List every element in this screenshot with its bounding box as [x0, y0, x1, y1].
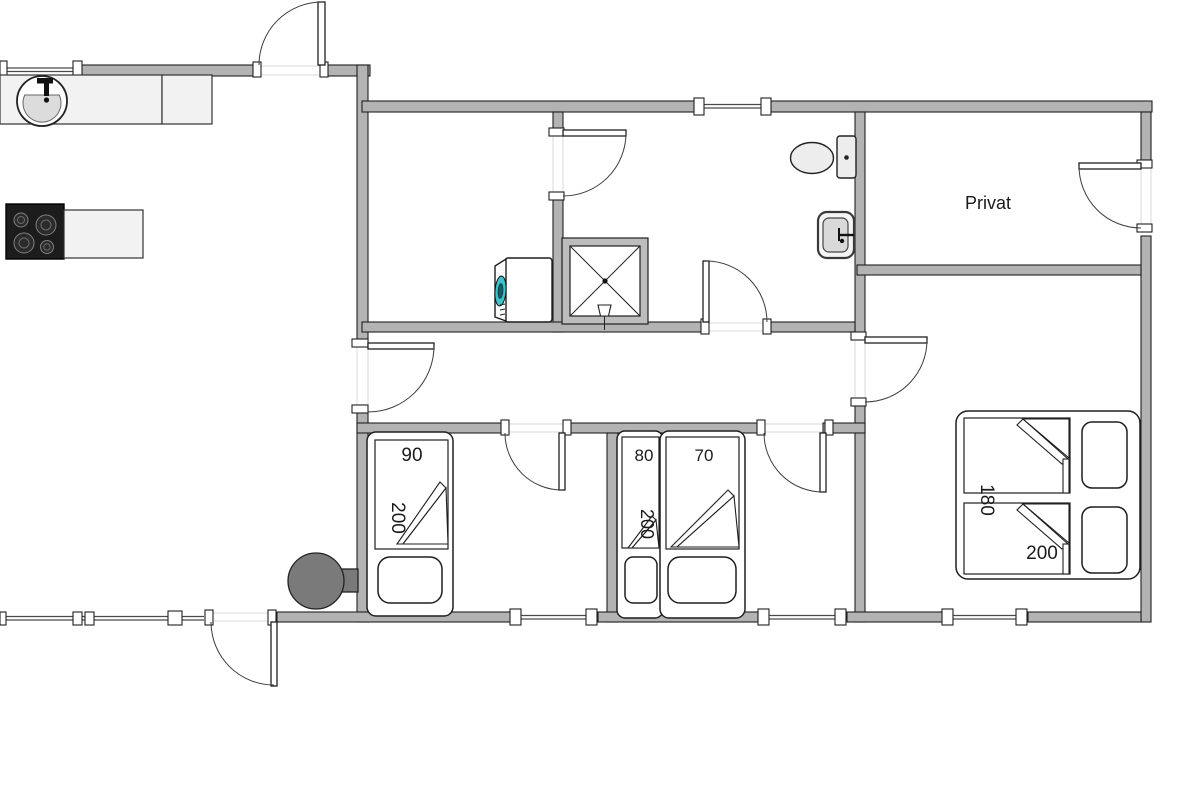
- floor-plan-canvas: 90 200 80 200 70 180 200 Privat: [0, 0, 1200, 800]
- door-swing-arc: [211, 622, 274, 685]
- window-cap: [694, 98, 704, 115]
- mattress-seam: [1063, 544, 1069, 574]
- wall-segment: [1028, 612, 1141, 622]
- door-leaf: [703, 261, 709, 322]
- window-south-bedroom2: [758, 609, 846, 625]
- bed-length-label: 200: [637, 509, 657, 539]
- door-jamb: [851, 332, 866, 340]
- toilet: [791, 136, 857, 178]
- washer-body: [505, 258, 552, 322]
- door-jamb: [501, 420, 509, 435]
- door-leaf: [271, 622, 277, 686]
- window-south-bedroom3: [942, 609, 1027, 625]
- window-glass: [521, 612, 588, 622]
- shower: [562, 238, 648, 330]
- wall-segment: [362, 322, 706, 332]
- door-swing-arc: [563, 133, 626, 196]
- door-jamb: [757, 420, 765, 435]
- kitchen: [0, 75, 212, 259]
- burner-icon: [41, 241, 54, 254]
- door-swing-arc: [865, 340, 927, 402]
- drain-icon: [44, 97, 49, 102]
- shower-center-dot: [602, 278, 607, 283]
- bed-length-label: 200: [1026, 543, 1058, 564]
- opening-privat-door: [1141, 168, 1151, 228]
- pillow: [378, 557, 442, 603]
- window-cap: [761, 98, 771, 115]
- wall-segment: [1141, 112, 1151, 160]
- window-glass: [769, 612, 836, 622]
- wall-segment: [765, 101, 1152, 112]
- opening-bath-hall: [706, 323, 767, 331]
- window-north-bath: [694, 98, 771, 115]
- window-cap: [758, 609, 769, 625]
- door-leaf: [820, 433, 826, 492]
- door-leaf: [318, 2, 325, 65]
- door-leaf: [559, 433, 565, 490]
- door-swing-arc: [764, 433, 823, 492]
- opening-bedroom1: [507, 424, 566, 432]
- window-glass: [953, 612, 1017, 622]
- pillow: [1082, 507, 1127, 573]
- door-swing-arc: [368, 346, 434, 412]
- wall-segment: [80, 65, 258, 76]
- window-south-bedroom1: [510, 609, 597, 625]
- bed-single-70: 70: [660, 431, 745, 618]
- bathroom-sink: [818, 212, 854, 258]
- kitchen-cabinet: [162, 75, 212, 124]
- door-leaf: [1079, 163, 1141, 169]
- window-south-living: [0, 611, 204, 625]
- kitchen-side-counter: [64, 210, 143, 258]
- door-swing-arc: [259, 2, 322, 65]
- window-cap: [0, 612, 6, 625]
- floor-plan: 90 200 80 200 70 180 200 Privat: [0, 0, 1200, 800]
- window-cap: [586, 609, 597, 625]
- door-jamb: [352, 339, 368, 347]
- window-joint: [73, 612, 82, 625]
- door-swing-arc: [706, 261, 767, 322]
- burner-icon: [14, 233, 34, 253]
- window-cap: [510, 609, 521, 625]
- window-cap: [835, 609, 846, 625]
- window-glass: [0, 65, 80, 76]
- bed-width-label: 80: [635, 446, 654, 465]
- window-cap: [168, 611, 182, 625]
- wall-segment: [847, 612, 943, 622]
- door-swing-arc: [1079, 166, 1141, 228]
- door-swing-arc: [505, 433, 562, 490]
- cooktop-surface: [6, 204, 64, 259]
- burner-icon: [14, 213, 28, 227]
- door-leaf: [368, 343, 434, 349]
- door-leaf: [865, 337, 927, 343]
- door-jamb: [549, 128, 564, 136]
- bed-width-label: 180: [976, 484, 997, 516]
- bed-width-label: 90: [401, 445, 422, 466]
- bed-width-label: 70: [695, 446, 714, 465]
- door-jamb: [851, 398, 866, 406]
- burner-icon: [36, 215, 56, 235]
- pillow: [668, 557, 736, 603]
- kitchen-sink: [17, 76, 67, 126]
- wall-segment: [857, 265, 1141, 275]
- bed-double: 180 200: [956, 411, 1140, 579]
- washing-machine: [494, 258, 552, 322]
- wall-segment: [855, 403, 865, 622]
- flush-button-icon: [844, 155, 849, 160]
- room-label-privat: Privat: [965, 193, 1011, 213]
- mattress-seam: [1063, 459, 1069, 493]
- pillow: [1082, 422, 1127, 488]
- window-cap: [1016, 609, 1027, 625]
- wall-segment: [767, 322, 855, 332]
- door-jamb: [253, 62, 261, 77]
- bed-length-label: 200: [387, 502, 408, 534]
- opening-east-bedroom: [855, 340, 865, 403]
- window-cap: [942, 609, 953, 625]
- opening-north-entrance: [258, 66, 322, 75]
- window-joint: [85, 612, 94, 625]
- opening-south-entrance: [212, 613, 274, 621]
- pillow: [625, 557, 657, 603]
- door-jamb: [352, 405, 368, 413]
- door-jamb: [549, 192, 564, 200]
- wood-burning-stove: [288, 553, 358, 609]
- door-leaf: [563, 130, 626, 136]
- wall-segment: [362, 101, 703, 112]
- window-glass: [704, 101, 764, 112]
- faucet-handle-icon: [840, 239, 844, 243]
- stove-body: [288, 553, 344, 609]
- bed-single-90: 90 200: [367, 432, 453, 616]
- drain-icon: [598, 305, 611, 316]
- opening-bedroom2: [762, 424, 823, 432]
- toilet-bowl: [791, 143, 834, 174]
- opening-living-hall: [357, 343, 368, 410]
- wall-segment: [1141, 236, 1151, 622]
- door-jamb: [205, 610, 213, 625]
- cooktop: [6, 204, 64, 259]
- faucet-icon: [44, 80, 49, 96]
- opening-utility-bath: [553, 133, 563, 196]
- bed-single-80: 80 200: [617, 431, 663, 618]
